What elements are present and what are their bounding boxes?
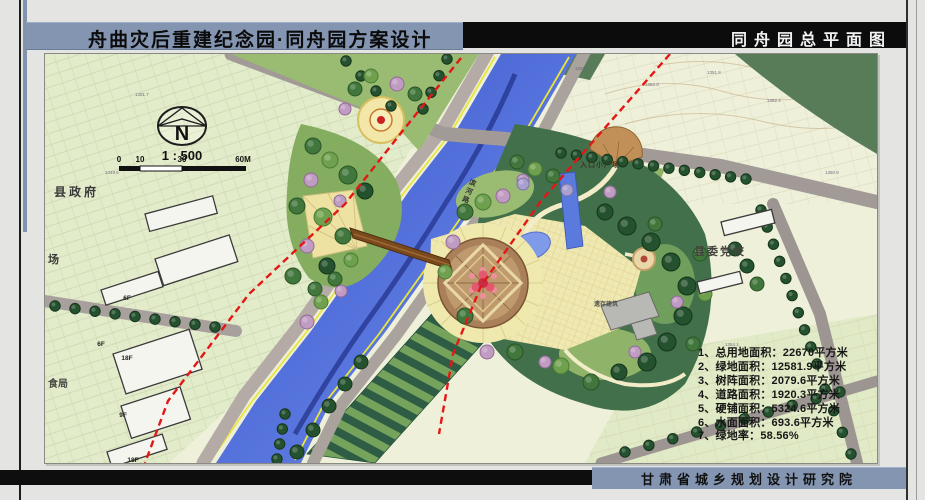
page-title: 舟曲灾后重建纪念园·同舟园方案设计: [88, 25, 432, 52]
memorial-plaza: [423, 223, 543, 343]
drawing-title-bar: 同舟园总平面图: [463, 22, 906, 48]
stat-line: 1、总用地面积：22670平方米: [698, 347, 884, 361]
building-label: 6F: [97, 341, 105, 348]
stat-line: 4、道路面积：1920.3平方米: [698, 389, 884, 403]
building-label: 6F: [123, 295, 131, 302]
north-letter: N: [175, 123, 189, 145]
title-bar: 舟曲灾后重建纪念园·同舟园方案设计: [26, 22, 463, 50]
institute-name: 甘肃省城乡规划设计研究院: [641, 469, 857, 488]
drawing-title: 同舟园总平面图: [731, 26, 892, 50]
elevation-mark: 1353.4: [575, 66, 589, 71]
scale-tick: 30: [178, 155, 187, 164]
right-rule-line-outer: [916, 0, 917, 500]
scale-tick: 60M: [235, 155, 251, 164]
stat-line: 6、水面面积：693.6平方米: [698, 417, 884, 431]
scale-tick: 0: [117, 155, 122, 164]
stat-line: 2、绿地面积：12581.9平方米: [698, 361, 884, 375]
scale-tick: 10: [136, 155, 145, 164]
right-rule-line: [906, 0, 908, 500]
page: { "header": { "main_title": "舟曲灾后重建纪念园·同…: [0, 0, 925, 500]
footer-institute-bar: 甘肃省城乡规划设计研究院: [592, 467, 906, 489]
area-statistics-panel: 1、总用地面积：22670平方米 2、绿地面积：12581.9平方米 3、树阵面…: [698, 347, 884, 444]
left-rule-line: [19, 0, 21, 500]
junction-plaza: [358, 97, 404, 143]
stat-line: 3、树阵面积：2079.6平方米: [698, 375, 884, 389]
building-label: 18F: [127, 457, 138, 463]
elevation-mark: 1351.8: [707, 70, 721, 75]
stat-line: 5、硬铺面积：5324.6平方米: [698, 403, 884, 417]
elevation-mark: 1350.9: [825, 170, 839, 175]
elevation-mark: 1349.6: [105, 170, 119, 175]
stat-line: 7、绿地率：58.56%: [698, 430, 884, 444]
building-label: 9F: [119, 412, 127, 419]
building-label: 18F: [121, 355, 132, 362]
elevation-mark: 1352.4: [767, 98, 781, 103]
elevation-mark: 1351.7: [135, 92, 149, 97]
elevation-mark: 1352.0: [645, 82, 659, 87]
